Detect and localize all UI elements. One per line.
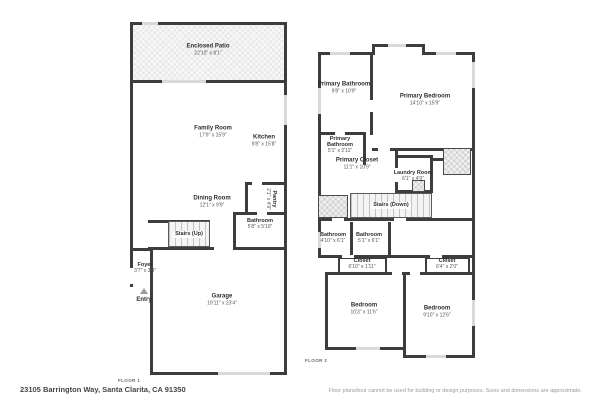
room-name: Dining Room <box>193 196 230 203</box>
room-dims: 9'8" x 15'8" <box>252 142 277 148</box>
room-dims: 6'1" x 4'9" <box>394 176 433 182</box>
room-name: Kitchen <box>252 135 277 142</box>
garage-door-marker <box>218 372 270 375</box>
wall <box>370 55 373 135</box>
front-door-opening <box>130 268 133 284</box>
window-marker <box>284 95 287 125</box>
room-label-bedroom-1: Bedroom 10'3" x 11'6" <box>350 303 377 316</box>
room-dims: 6'4" x 2'0" <box>436 264 458 270</box>
room-dims: 2'1" x 4'9" <box>265 188 271 210</box>
room-dims: 19'11" x 23'4" <box>207 301 237 307</box>
wall <box>233 212 236 250</box>
window-marker <box>330 52 350 55</box>
window-marker <box>472 62 475 88</box>
wall <box>284 22 287 375</box>
entry-arrow-icon <box>140 288 148 294</box>
room-dims: 4'10" x 6'1" <box>320 238 346 244</box>
wall <box>325 275 328 350</box>
room-dims: 9'8" x 10'9" <box>318 89 370 95</box>
room-label-bathroom-1: Bathroom 4'10" x 6'1" <box>320 232 346 244</box>
room-dims: 9'10" x 12'6" <box>423 313 450 319</box>
window-marker <box>388 44 406 47</box>
stairs-down: Stairs (Down) <box>350 193 432 218</box>
room-label-garage: Garage 19'11" x 23'4" <box>207 294 237 307</box>
door-opening <box>335 132 345 135</box>
disclaimer-text: Floor plans/tour cannot be used for buil… <box>329 388 582 394</box>
room-dims: 11'1" x 10'9" <box>336 165 378 171</box>
wall <box>395 155 433 158</box>
room-name: Bedroom <box>350 303 377 310</box>
room-label-bathroom-2: Bathroom 5'1" x 6'1" <box>356 232 382 244</box>
room-label-primary-bathroom-2: Primary Bathroom 5'1" x 2'11" <box>318 136 362 154</box>
closet-wall <box>468 257 470 274</box>
room-dims: 5'8" x 5'10" <box>247 224 273 230</box>
window-marker <box>472 300 475 326</box>
wall <box>433 158 443 161</box>
room-label-closet-2: Closet 6'4" x 2'0" <box>436 258 458 270</box>
window-marker <box>426 355 446 358</box>
wall <box>148 247 214 250</box>
room-label-enclosed-patio: Enclosed Patio 22'10" x 8'1" <box>186 44 229 57</box>
room-name: Enclosed Patio <box>186 44 229 51</box>
room-label-kitchen: Kitchen 9'8" x 15'8" <box>252 135 277 148</box>
entry-label: Entry <box>136 297 151 303</box>
door-opening <box>394 218 406 221</box>
room-dims: 3'7" x 3'4" <box>134 268 156 274</box>
wall <box>350 222 353 255</box>
room-name: Bedroom <box>423 306 450 313</box>
floor2-label: FLOOR 2 <box>305 358 327 363</box>
wall <box>403 275 406 358</box>
room-label-primary-bathroom-1: Primary Bathroom 9'8" x 10'9" <box>318 82 370 95</box>
door-opening <box>332 218 344 221</box>
room-name: Primary Bathroom <box>318 136 362 148</box>
room-dims: 6'10" x 1'11" <box>348 264 375 270</box>
room-label-bedroom-2: Bedroom 9'10" x 12'6" <box>423 306 450 319</box>
stairs-down-label: Stairs (Down) <box>371 202 410 209</box>
door-opening <box>370 100 373 112</box>
room-name: Primary Closet <box>336 158 378 165</box>
window-marker <box>356 347 380 350</box>
room-label-family-room: Family Room 17'9" x 15'9" <box>194 126 232 139</box>
window-marker <box>142 22 158 25</box>
door-opening <box>392 272 402 275</box>
room-label-primary-bedroom: Primary Bedroom 14'10" x 15'9" <box>400 94 450 107</box>
closet-wall <box>385 257 387 274</box>
hatched-area <box>443 148 471 175</box>
closet-wall <box>425 257 427 274</box>
room-dims: 5'1" x 6'1" <box>356 238 382 244</box>
room-dims: 17'9" x 15'9" <box>194 133 232 139</box>
hatched-area <box>318 195 348 218</box>
room-label-pantry: Pantry 2'1" x 4'9" <box>265 188 277 210</box>
floorplan-image: Stairs (Up) Enclosed Patio 22'10" x 8'1"… <box>0 0 600 400</box>
room-label-closet-1: Closet 6'10" x 1'11" <box>348 258 375 270</box>
room-name: Garage <box>207 294 237 301</box>
door-opening <box>252 182 262 185</box>
floor1-label: FLOOR 1 <box>118 378 140 383</box>
room-dims: 5'1" x 2'11" <box>318 148 362 154</box>
closet-wall <box>338 257 340 274</box>
room-dims: 22'10" x 8'1" <box>186 51 229 57</box>
room-name: Family Room <box>194 126 232 133</box>
room-label-primary-closet: Primary Closet 11'1" x 10'9" <box>336 158 378 171</box>
wall <box>130 80 287 83</box>
room-label-bathroom: Bathroom 5'8" x 5'10" <box>247 218 273 230</box>
room-label-foyer: Foyer 3'7" x 3'4" <box>134 262 156 274</box>
door-opening <box>378 148 390 151</box>
door-opening <box>410 272 420 275</box>
room-dims: 10'3" x 11'6" <box>350 310 377 316</box>
stairs-up: Stairs (Up) <box>168 221 210 247</box>
room-name: Primary Bathroom <box>318 82 370 89</box>
window-marker <box>436 52 456 55</box>
room-dims: 12'1" x 9'9" <box>193 203 230 209</box>
wall <box>245 182 248 215</box>
door-opening <box>257 212 267 215</box>
wall <box>388 222 391 255</box>
stairs-up-label: Stairs (Up) <box>173 231 205 238</box>
room-name: Primary Bedroom <box>400 94 450 101</box>
wall <box>233 247 287 250</box>
patio-door-marker <box>162 80 206 83</box>
room-dims: 14'10" x 15'9" <box>400 101 450 107</box>
room-label-dining-room: Dining Room 12'1" x 9'9" <box>193 196 230 209</box>
address-text: 23105 Barrington Way, Santa Clarita, CA … <box>20 385 186 394</box>
room-label-laundry-room: Laundry Room 6'1" x 4'9" <box>394 170 433 182</box>
room-name: Pantry <box>271 188 277 210</box>
